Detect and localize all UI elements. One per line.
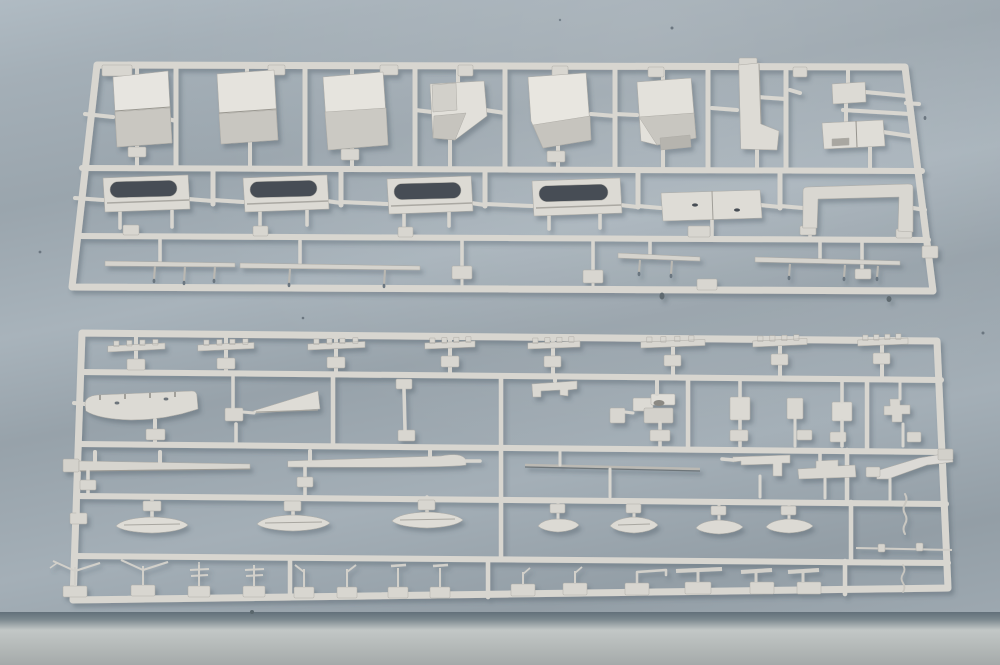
pin [214, 267, 215, 279]
porthole [734, 208, 740, 211]
gate-tab [458, 65, 473, 76]
gate-tab [80, 480, 96, 490]
part-angle-arm-tip [938, 449, 953, 460]
antenna-base [750, 582, 774, 594]
gate-tab [583, 270, 603, 283]
antenna-t-bar [788, 570, 819, 572]
stub [591, 114, 615, 116]
stub [760, 205, 780, 207]
gate-tab [626, 504, 641, 513]
part-railing-8 [858, 334, 908, 346]
stub [638, 206, 661, 208]
antenna-arm [575, 567, 582, 573]
gate-tab [711, 506, 726, 515]
stub [74, 403, 85, 404]
pin-tip [183, 281, 186, 285]
cross-rail [77, 496, 946, 504]
part-boat-7 [766, 519, 813, 533]
gate-tab [730, 430, 748, 441]
antenna-crossbar [190, 569, 209, 570]
antenna-l-bar [637, 570, 666, 583]
antenna-base [685, 582, 711, 594]
dust-speck [302, 317, 305, 320]
stub [188, 199, 213, 201]
stub [615, 114, 637, 115]
slot-opening [539, 184, 608, 202]
part-boat-4 [538, 519, 579, 532]
gate-tab [610, 408, 625, 423]
antenna-base [430, 587, 450, 598]
part-step-bracket [733, 455, 790, 476]
part-block [787, 398, 803, 419]
gate-tab [650, 430, 670, 441]
gate-mark [660, 293, 665, 300]
bottom-sprue [50, 333, 953, 600]
gate-tab [217, 358, 235, 369]
hole [164, 398, 169, 401]
antenna-base [63, 586, 87, 597]
part-mast-rod-tip [63, 459, 79, 472]
top-sprue [72, 58, 938, 302]
antenna-base [625, 583, 649, 595]
antenna-base [563, 583, 587, 595]
gate-tab [327, 357, 345, 368]
gate-tab [398, 227, 413, 237]
antenna-base [388, 587, 408, 598]
part-anchor-chain [904, 494, 907, 534]
part-boat-deck [85, 391, 198, 420]
stub [213, 200, 243, 202]
dust-speck [559, 19, 561, 21]
dust-speck [924, 116, 927, 120]
part-yardarm-rod [618, 253, 700, 261]
pin-tip [213, 279, 216, 283]
part-box-8a [832, 82, 866, 104]
antenna-crossbar [433, 565, 448, 566]
part-clamp [884, 399, 910, 422]
pin-tip [843, 277, 846, 281]
cross-rail [82, 168, 922, 171]
gate-tab [664, 355, 681, 366]
antenna-base [337, 587, 357, 598]
antenna-arm [523, 568, 530, 574]
antenna-crossbar [245, 569, 264, 570]
stub [913, 208, 925, 210]
gate-tab [550, 504, 565, 513]
pin [289, 269, 290, 283]
gate-tab [225, 408, 243, 421]
antenna-arm [295, 565, 304, 572]
part-boat-6 [696, 520, 743, 534]
pin [877, 266, 878, 277]
antenna-arm [121, 560, 143, 570]
antenna-crossbar [246, 575, 263, 576]
slot-opening [110, 180, 177, 198]
part-bracket-6 [803, 184, 913, 232]
stub [471, 203, 485, 205]
gate-tab [797, 430, 812, 440]
stub [906, 103, 919, 104]
antenna-t-bar [676, 569, 722, 571]
stub [780, 206, 803, 208]
pin [639, 260, 640, 272]
stub [243, 412, 254, 413]
stub [757, 97, 786, 99]
pin-tip [638, 272, 641, 276]
cross-rail [75, 556, 948, 563]
part-yardarm-rod [240, 263, 420, 270]
part-wedge-4-panel [432, 83, 457, 112]
gate-tab [781, 506, 796, 515]
antenna-crossbar [391, 565, 406, 566]
gate-tab [297, 477, 313, 487]
stub [620, 205, 638, 207]
stub [485, 204, 532, 206]
pin [789, 264, 790, 276]
antenna-base [511, 584, 535, 596]
gate-tab [907, 432, 921, 442]
antenna-base [797, 582, 821, 594]
part-block [832, 402, 852, 421]
antenna-base [243, 586, 265, 597]
pin-tip [670, 274, 673, 278]
part-mast-rod [288, 455, 466, 468]
stub [712, 108, 737, 110]
gate-tab [146, 429, 165, 440]
gate-tab [123, 225, 139, 235]
pin [384, 270, 385, 284]
gate-tab [855, 269, 871, 279]
stub [722, 459, 733, 460]
antenna-arm [347, 565, 356, 572]
part-block [730, 397, 750, 420]
dust-speck [671, 27, 674, 30]
part-plate-5 [661, 190, 762, 221]
gate-tab [922, 246, 938, 258]
antenna-base [131, 585, 155, 596]
gate-tab [341, 149, 359, 160]
part-fitting [916, 543, 923, 551]
gate-tab [127, 359, 145, 370]
part-deckhouse-1-shade [115, 108, 172, 147]
gate-tab [771, 354, 788, 365]
gate-tab [418, 500, 435, 510]
cross-rail [84, 372, 941, 380]
antenna-arm [50, 563, 57, 568]
recess [654, 400, 665, 406]
stub [790, 90, 800, 93]
antenna-base [188, 586, 210, 597]
gate-tab [143, 501, 161, 511]
gate-tab [873, 353, 890, 364]
gate-tab [866, 467, 880, 477]
slot-opening [250, 180, 317, 198]
part-yardarm-rod [105, 261, 235, 267]
pin [154, 266, 155, 279]
gate-tab [452, 266, 472, 279]
pin-tip [288, 283, 291, 287]
part-box-8b-notch [832, 138, 849, 146]
cross-rail [79, 236, 928, 240]
part-deckhouse-2-shade [219, 110, 278, 144]
gate-tab [128, 147, 146, 157]
stub [327, 201, 341, 203]
antenna-arm [143, 562, 168, 570]
gate-tab [102, 65, 132, 76]
pin [184, 267, 185, 281]
gate-tab [547, 151, 565, 162]
part-mount [644, 408, 673, 423]
antenna-t-bar [741, 570, 772, 572]
part-triangle [253, 391, 320, 413]
pin-tip [383, 284, 386, 288]
cross-rail [80, 444, 944, 452]
pin-tip [788, 276, 791, 280]
gate-tab [284, 501, 301, 511]
part-fitting [878, 544, 885, 552]
stub [485, 110, 505, 113]
stub [404, 389, 405, 430]
pin-tip [153, 279, 156, 283]
stub [843, 110, 910, 114]
pin [844, 265, 845, 277]
antenna-base [294, 587, 314, 598]
gate-tab [398, 430, 415, 441]
part-small-bracket [532, 381, 577, 397]
porthole [692, 203, 698, 206]
gate-tab [253, 226, 268, 236]
stub [415, 110, 432, 112]
hole [115, 402, 120, 405]
pin [671, 261, 672, 274]
part-yardarm-rod [755, 257, 900, 265]
sprues-photo [0, 0, 1000, 665]
slot-opening [394, 182, 461, 200]
gate-tab [544, 356, 561, 367]
stub [883, 132, 910, 136]
dust-speck [982, 332, 985, 335]
dust-speck [250, 610, 254, 614]
part-thin-rod [856, 548, 952, 550]
part-box-8b [822, 120, 885, 149]
stub [341, 202, 387, 204]
gate-tab [648, 67, 664, 77]
dust-speck [39, 251, 42, 254]
pin-tip [876, 277, 879, 281]
gate-tab [697, 279, 717, 290]
stub [625, 412, 633, 413]
gate-tab [688, 226, 710, 237]
gate-tab [441, 356, 459, 367]
antenna-arm [75, 563, 100, 571]
gate-tab [793, 67, 807, 77]
stub [75, 198, 103, 200]
part-deckhouse-3-shade [325, 108, 388, 150]
gate-mark [887, 296, 892, 302]
antenna-crossbar [191, 575, 208, 576]
stub [865, 92, 908, 96]
